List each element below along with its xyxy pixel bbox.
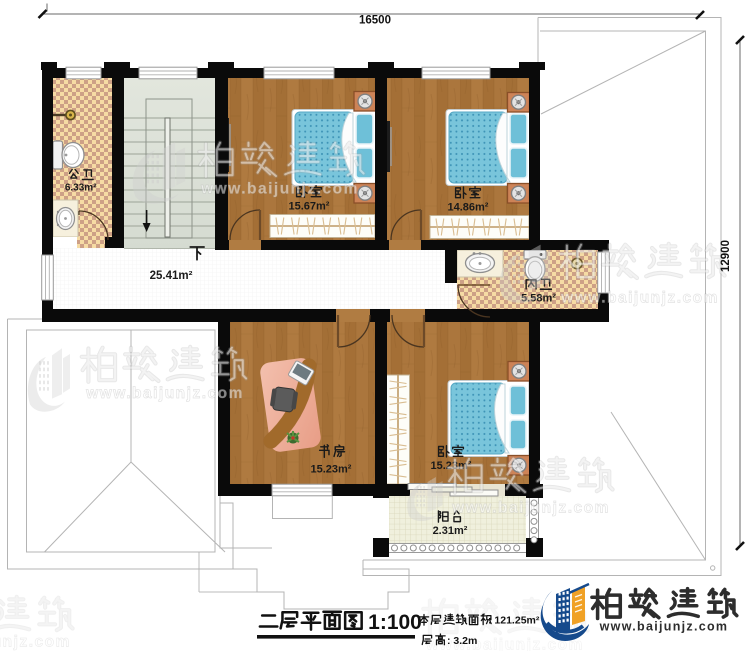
svg-text:www.baijunjz.com: www.baijunjz.com bbox=[451, 500, 610, 517]
svg-text:www.baijunjz.com: www.baijunjz.com bbox=[200, 181, 359, 198]
svg-text:15.67m²: 15.67m² bbox=[289, 201, 330, 213]
svg-text:2.31m²: 2.31m² bbox=[433, 525, 468, 537]
svg-text:www.baijunjz.com: www.baijunjz.com bbox=[0, 634, 71, 651]
svg-text:12900: 12900 bbox=[720, 240, 732, 272]
svg-text:: 3.2m: : 3.2m bbox=[447, 635, 477, 647]
svg-text:25.41m²: 25.41m² bbox=[150, 270, 193, 282]
svg-text:www.baijunjz.com: www.baijunjz.com bbox=[599, 620, 729, 634]
svg-text:15.23m²: 15.23m² bbox=[311, 464, 352, 476]
svg-text:: 121.25m²: : 121.25m² bbox=[488, 615, 540, 627]
svg-text:www.baijunjz.com: www.baijunjz.com bbox=[560, 290, 719, 307]
svg-text:14.86m²: 14.86m² bbox=[448, 202, 489, 214]
svg-text:16500: 16500 bbox=[359, 15, 391, 27]
svg-text:1:100: 1:100 bbox=[368, 611, 422, 634]
svg-text:6.33m²: 6.33m² bbox=[65, 183, 97, 194]
svg-text:www.baijunjz.com: www.baijunjz.com bbox=[85, 385, 244, 402]
